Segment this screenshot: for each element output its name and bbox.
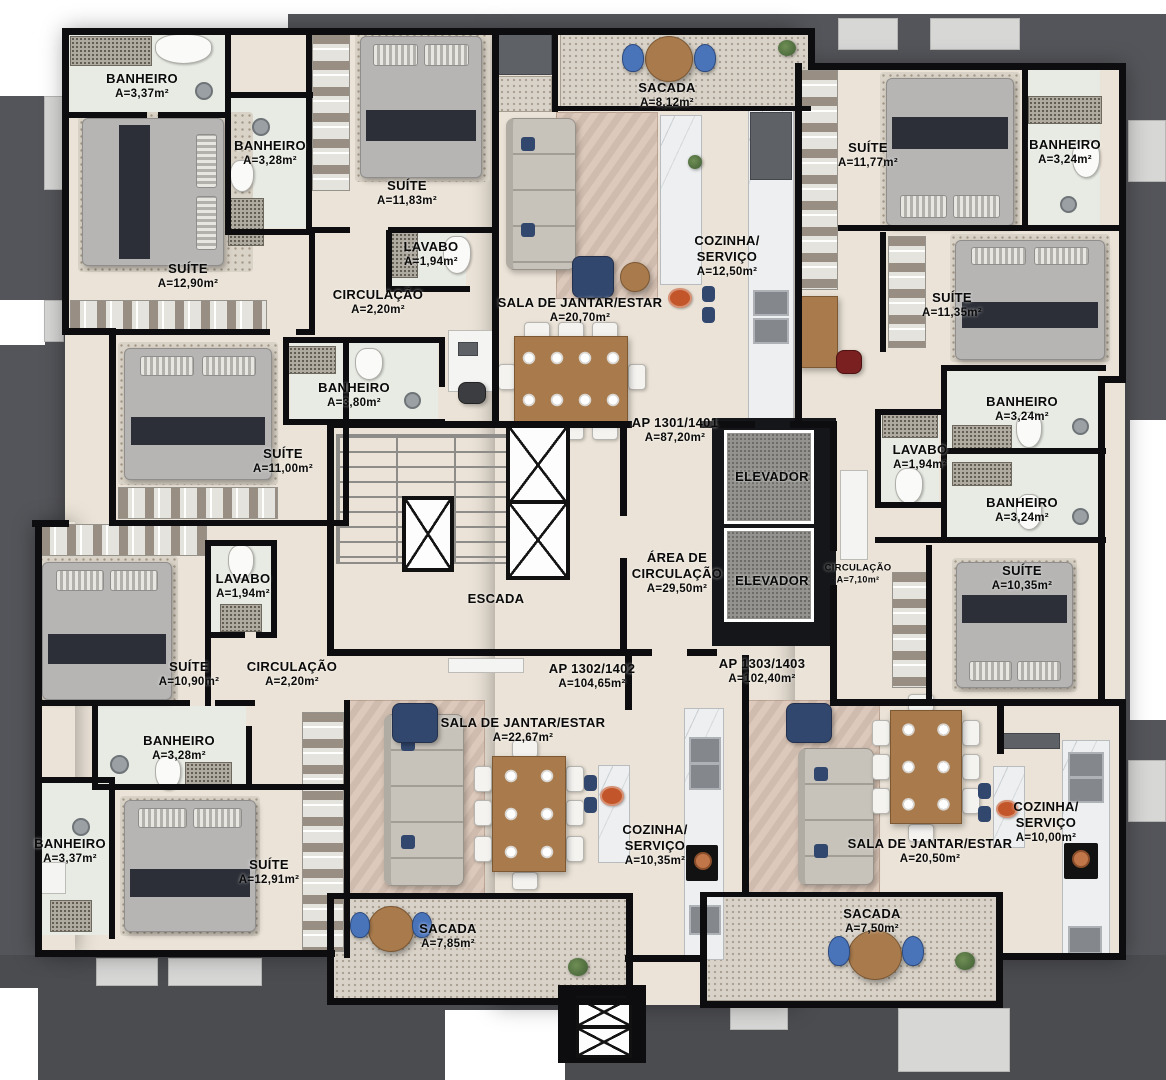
room-label: AP 1301/1401A=87,20m² xyxy=(632,415,719,445)
room-label: SALA DE JANTAR/ESTARA=20,50m² xyxy=(848,836,1013,866)
room-label: AP 1303/1403A=102,40m² xyxy=(719,656,806,686)
room-label: SALA DE JANTAR/ESTARA=20,70m² xyxy=(498,295,663,325)
room-label: ELEVADOR xyxy=(735,573,809,589)
room-label: SUÍTEA=10,90m² xyxy=(159,659,220,689)
room-label: ÁREA DE CIRCULAÇÃOA=29,50m² xyxy=(632,550,722,596)
room-label: SUÍTEA=11,35m² xyxy=(922,290,982,320)
room-label: SUÍTEA=12,91m² xyxy=(239,857,300,887)
room-label: SACADAA=7,85m² xyxy=(419,921,476,951)
room-label: COZINHA/ SERVIÇOA=12,50m² xyxy=(694,233,759,279)
room-label: CIRCULAÇÃOA=2,20m² xyxy=(247,659,337,689)
room-label: SUÍTEA=11,83m² xyxy=(377,178,437,208)
room-label: SACADAA=8,12m² xyxy=(638,80,695,110)
room-label: BANHEIROA=3,24m² xyxy=(986,394,1058,424)
floor-plan: BANHEIROA=3,37m²BANHEIROA=3,28m²SUÍTEA=1… xyxy=(0,0,1166,1080)
room-label: BANHEIROA=3,24m² xyxy=(1029,137,1101,167)
room-label: SUÍTEA=12,90m² xyxy=(158,261,219,291)
room-label: AP 1302/1402A=104,65m² xyxy=(549,661,636,691)
room-label: BANHEIROA=3,37m² xyxy=(106,71,178,101)
room-label: BANHEIROA=3,28m² xyxy=(234,138,306,168)
room-label: SUÍTEA=11,77m² xyxy=(838,140,898,170)
room-label: BANHEIROA=3,37m² xyxy=(34,836,106,866)
room-label: COZINHA/ SERVIÇOA=10,35m² xyxy=(622,822,687,868)
room-label: ELEVADOR xyxy=(735,469,809,485)
room-label: ESCADA xyxy=(468,591,525,607)
room-label: SUÍTEA=11,00m² xyxy=(253,446,313,476)
room-label: SALA DE JANTAR/ESTARA=22,67m² xyxy=(441,715,606,745)
room-label: SACADAA=7,50m² xyxy=(843,906,900,936)
room-label: SUÍTEA=10,35m² xyxy=(992,563,1053,593)
room-label: BANHEIROA=3,24m² xyxy=(986,495,1058,525)
room-label: COZINHA/ SERVIÇOA=10,00m² xyxy=(1013,799,1078,845)
room-label: LAVABOA=1,94m² xyxy=(216,571,271,601)
room-label: LAVABOA=1,94m² xyxy=(404,239,459,269)
room-label: BANHEIROA=3,28m² xyxy=(143,733,215,763)
room-label: CIRCULAÇÃOA=2,20m² xyxy=(333,287,423,317)
room-label: LAVABOA=1,94m² xyxy=(893,442,948,472)
room-label: CIRCULAÇÃOA=7,10m² xyxy=(825,563,892,586)
room-labels: BANHEIROA=3,37m²BANHEIROA=3,28m²SUÍTEA=1… xyxy=(0,0,1166,1080)
room-label: BANHEIROA=3,80m² xyxy=(318,380,390,410)
